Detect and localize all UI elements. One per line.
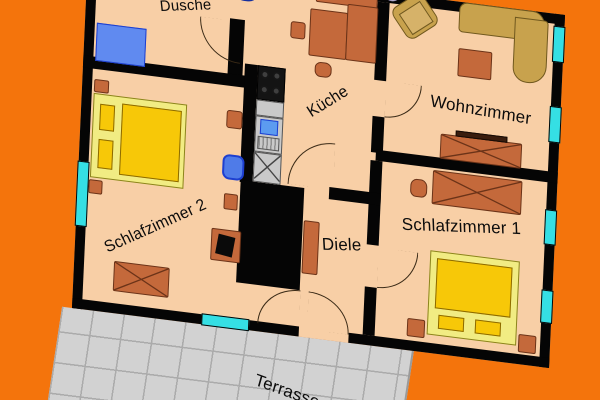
kitchen-sink-unit: [254, 115, 283, 155]
kitchen-chair-1: [290, 21, 306, 40]
label-dusche: Dusche: [159, 0, 212, 15]
sink-basin-icon: [260, 119, 279, 136]
label-diele: Diele: [321, 235, 362, 256]
bed-schlafzimmer2: [90, 93, 187, 189]
bed-schlafzimmer1: [427, 250, 520, 345]
window-right-2: [548, 106, 562, 144]
coffee-table: [457, 48, 492, 80]
wall-diele-stub: [363, 286, 377, 336]
nightstand: [407, 318, 426, 338]
nightstand: [88, 179, 103, 195]
stool: [223, 193, 238, 211]
chair-black-seat: [210, 228, 241, 264]
wall-kueche-wohnzimmer-lower: [371, 116, 385, 154]
hall-sideboard: [301, 220, 319, 275]
window-right-1: [552, 26, 566, 64]
floorplan-image: Dusche Küche Wohnzimmer Schlafzimmer 2 D…: [0, 0, 600, 400]
kitchen-table: [308, 8, 348, 60]
sofa-right: [512, 17, 549, 85]
blue-stool-icon: [222, 154, 245, 182]
window-right-3: [544, 209, 558, 246]
wall-column: [236, 180, 304, 290]
kitchen-chair-2: [314, 61, 332, 78]
kitchen-base-cabinet: [253, 151, 282, 185]
chair: [226, 110, 243, 130]
nightstand: [518, 334, 537, 354]
window-right-4: [540, 289, 553, 324]
kitchen-cupboard-tall: [345, 4, 378, 64]
sink-drainer: [257, 136, 279, 152]
stool: [410, 178, 428, 198]
stove-icon: [256, 65, 285, 103]
nightstand: [94, 79, 109, 94]
shower-icon: [95, 23, 146, 67]
